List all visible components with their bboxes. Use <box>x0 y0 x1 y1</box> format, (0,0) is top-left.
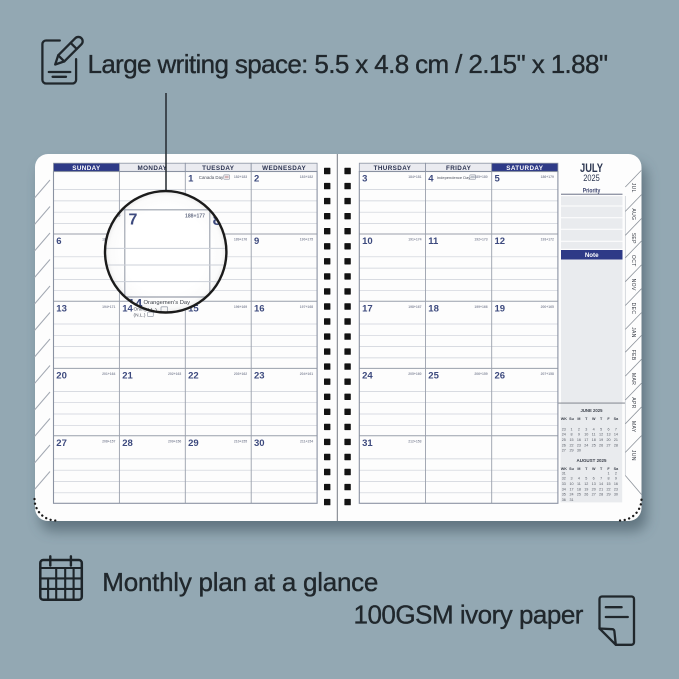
svg-text:1: 1 <box>188 174 194 185</box>
svg-text:Note: Note <box>585 252 599 259</box>
svg-text:4: 4 <box>428 174 434 185</box>
svg-text:APR: APR <box>630 397 636 408</box>
svg-text:10: 10 <box>362 236 373 247</box>
svg-text:209+156: 209+156 <box>168 439 181 443</box>
svg-text:31: 31 <box>362 438 373 449</box>
svg-text:31: 31 <box>569 498 573 502</box>
svg-text:FEB: FEB <box>630 350 636 361</box>
svg-text:(N.L.): (N.L.) <box>134 312 146 318</box>
svg-text:16: 16 <box>614 482 618 486</box>
svg-text:MONDAY: MONDAY <box>137 165 167 172</box>
svg-text:193+172: 193+172 <box>541 238 554 242</box>
svg-text:12: 12 <box>495 236 506 247</box>
svg-text:18: 18 <box>592 438 596 442</box>
svg-text:TUESDAY: TUESDAY <box>202 165 235 172</box>
svg-text:26: 26 <box>562 443 566 447</box>
svg-text:Large writing space: 5.5 x 4.8: Large writing space: 5.5 x 4.8 cm / 2.15… <box>88 49 608 79</box>
svg-text:2025: 2025 <box>583 173 600 183</box>
svg-text:7: 7 <box>615 427 617 431</box>
svg-text:15: 15 <box>606 482 610 486</box>
svg-text:190+175: 190+175 <box>300 238 313 242</box>
svg-text:204+161: 204+161 <box>300 372 313 376</box>
svg-text:28: 28 <box>599 493 603 497</box>
svg-text:17: 17 <box>584 438 588 442</box>
svg-text:205+160: 205+160 <box>408 372 421 376</box>
svg-text:SATURDAY: SATURDAY <box>506 165 544 172</box>
svg-text:22: 22 <box>569 443 573 447</box>
svg-text:25: 25 <box>428 371 439 382</box>
svg-text:197+168: 197+168 <box>300 305 313 309</box>
svg-text:19: 19 <box>584 487 588 491</box>
svg-text:5: 5 <box>600 427 602 431</box>
svg-text:21: 21 <box>122 371 133 382</box>
svg-text:30: 30 <box>614 493 618 497</box>
svg-text:8: 8 <box>607 477 609 481</box>
svg-text:OCT: OCT <box>630 255 636 267</box>
svg-text:5: 5 <box>585 477 587 481</box>
svg-text:2: 2 <box>578 427 580 431</box>
svg-text:27: 27 <box>592 493 596 497</box>
svg-text:14: 14 <box>614 433 618 437</box>
svg-text:WK: WK <box>561 417 567 421</box>
svg-text:202+163: 202+163 <box>168 372 181 376</box>
svg-text:17: 17 <box>569 487 573 491</box>
svg-text:1: 1 <box>607 471 609 475</box>
svg-text:WK: WK <box>561 467 567 471</box>
svg-text:2: 2 <box>254 174 259 185</box>
svg-text:198+167: 198+167 <box>408 305 421 309</box>
svg-text:JAN: JAN <box>630 327 636 338</box>
svg-text:JUL: JUL <box>630 183 636 193</box>
svg-text:26: 26 <box>495 371 506 382</box>
svg-text:10: 10 <box>584 433 588 437</box>
svg-text:AUG: AUG <box>630 208 636 220</box>
svg-text:Orangemen's Day: Orangemen's Day <box>144 300 191 306</box>
svg-text:35: 35 <box>562 493 566 497</box>
svg-text:201+164: 201+164 <box>102 372 115 376</box>
svg-text:13: 13 <box>606 433 610 437</box>
svg-text:23: 23 <box>577 443 581 447</box>
svg-text:M: M <box>577 467 580 471</box>
svg-text:16: 16 <box>577 438 581 442</box>
svg-text:212+153: 212+153 <box>408 439 421 443</box>
svg-text:182+183: 182+183 <box>234 175 247 179</box>
svg-text:7: 7 <box>600 477 602 481</box>
svg-text:14: 14 <box>122 303 133 314</box>
svg-text:NOV: NOV <box>630 279 636 291</box>
svg-text:6: 6 <box>56 236 61 247</box>
svg-text:15: 15 <box>569 438 573 442</box>
svg-text:22: 22 <box>188 371 199 382</box>
svg-text:3: 3 <box>362 174 367 185</box>
svg-text:9: 9 <box>578 433 580 437</box>
svg-text:16: 16 <box>254 303 265 314</box>
svg-text:10: 10 <box>569 482 573 486</box>
svg-text:DEC: DEC <box>630 303 636 315</box>
svg-text:13: 13 <box>56 303 67 314</box>
svg-text:3: 3 <box>585 427 587 431</box>
svg-text:6: 6 <box>593 477 595 481</box>
svg-text:21: 21 <box>614 438 618 442</box>
svg-text:29: 29 <box>606 493 610 497</box>
svg-text:199+166: 199+166 <box>474 305 487 309</box>
svg-text:26: 26 <box>584 493 588 497</box>
svg-text:4: 4 <box>593 427 595 431</box>
svg-text:34: 34 <box>562 487 566 491</box>
svg-text:189+176: 189+176 <box>234 238 247 242</box>
svg-text:9: 9 <box>254 236 259 247</box>
svg-text:6: 6 <box>607 427 609 431</box>
svg-text:32: 32 <box>562 477 566 481</box>
svg-text:JUNE 2025: JUNE 2025 <box>581 408 603 414</box>
svg-text:25: 25 <box>562 438 566 442</box>
svg-text:208+157: 208+157 <box>102 439 115 443</box>
svg-text:11: 11 <box>592 433 596 437</box>
svg-text:24: 24 <box>362 371 373 382</box>
svg-text:23: 23 <box>562 427 566 431</box>
svg-text:26: 26 <box>599 443 603 447</box>
svg-text:17: 17 <box>362 303 373 314</box>
svg-text:24: 24 <box>584 443 588 447</box>
svg-text:186+179: 186+179 <box>541 175 554 179</box>
svg-text:19: 19 <box>495 303 506 314</box>
svg-text:28: 28 <box>614 443 618 447</box>
svg-text:183+182: 183+182 <box>300 175 313 179</box>
svg-text:11: 11 <box>428 236 439 247</box>
svg-text:JUN: JUN <box>630 450 636 461</box>
svg-text:206+159: 206+159 <box>474 372 487 376</box>
svg-text:Su: Su <box>569 467 574 471</box>
svg-text:27: 27 <box>56 438 67 449</box>
svg-text:27: 27 <box>606 443 610 447</box>
svg-text:7: 7 <box>129 212 138 229</box>
svg-text:W: W <box>592 417 596 421</box>
svg-text:203+162: 203+162 <box>234 372 247 376</box>
svg-text:M: M <box>577 417 580 421</box>
svg-text:21: 21 <box>599 487 603 491</box>
svg-text:18: 18 <box>577 487 581 491</box>
svg-text:11: 11 <box>577 482 581 486</box>
svg-text:13: 13 <box>592 482 596 486</box>
svg-text:29: 29 <box>569 449 573 453</box>
svg-text:28: 28 <box>122 438 133 449</box>
svg-text:24: 24 <box>569 493 573 497</box>
svg-text:20: 20 <box>606 438 610 442</box>
svg-text:5: 5 <box>495 174 501 185</box>
svg-text:211+154: 211+154 <box>300 439 313 443</box>
svg-text:Monthly plan at a glance: Monthly plan at a glance <box>102 567 378 597</box>
svg-text:27: 27 <box>562 449 566 453</box>
svg-text:196+169: 196+169 <box>234 305 247 309</box>
svg-text:191+174: 191+174 <box>408 238 421 242</box>
svg-text:Priority: Priority <box>583 188 601 195</box>
svg-text:Canada Day: Canada Day <box>199 175 224 180</box>
svg-text:2: 2 <box>615 471 617 475</box>
svg-text:25: 25 <box>577 493 581 497</box>
svg-text:19: 19 <box>599 438 603 442</box>
svg-text:188+177: 188+177 <box>185 213 205 219</box>
svg-text:210+155: 210+155 <box>234 439 247 443</box>
svg-text:20: 20 <box>592 487 596 491</box>
svg-text:33: 33 <box>562 482 566 486</box>
svg-text:4: 4 <box>578 477 580 481</box>
svg-text:31: 31 <box>562 471 566 475</box>
svg-text:12: 12 <box>599 433 603 437</box>
svg-text:12: 12 <box>584 482 588 486</box>
svg-text:3: 3 <box>570 477 572 481</box>
svg-text:192+173: 192+173 <box>474 238 487 242</box>
svg-text:30: 30 <box>254 438 265 449</box>
svg-text:FRIDAY: FRIDAY <box>446 165 472 172</box>
svg-text:Independence Day: Independence Day <box>437 175 471 180</box>
svg-text:14: 14 <box>599 482 603 486</box>
svg-text:Su: Su <box>569 417 574 421</box>
svg-text:207+158: 207+158 <box>541 372 554 376</box>
svg-text:SUNDAY: SUNDAY <box>72 165 101 172</box>
svg-text:MAY: MAY <box>630 421 636 433</box>
svg-text:25: 25 <box>592 443 596 447</box>
svg-text:MAR: MAR <box>630 373 636 385</box>
svg-text:1: 1 <box>570 427 572 431</box>
svg-text:W: W <box>592 467 596 471</box>
svg-text:18: 18 <box>428 303 439 314</box>
svg-text:194+171: 194+171 <box>102 305 115 309</box>
svg-text:THURSDAY: THURSDAY <box>374 165 412 172</box>
svg-text:24: 24 <box>562 433 566 437</box>
svg-text:9: 9 <box>615 477 617 481</box>
svg-text:23: 23 <box>254 371 265 382</box>
svg-text:30: 30 <box>577 449 581 453</box>
svg-text:23: 23 <box>614 487 618 491</box>
svg-text:20: 20 <box>56 371 67 382</box>
svg-text:SEP: SEP <box>630 233 636 244</box>
svg-text:AUGUST 2025: AUGUST 2025 <box>577 458 607 464</box>
svg-text:22: 22 <box>606 487 610 491</box>
svg-text:100GSM ivory paper: 100GSM ivory paper <box>354 600 584 630</box>
svg-text:184+181: 184+181 <box>408 175 421 179</box>
svg-text:36: 36 <box>562 498 566 502</box>
svg-text:200+165: 200+165 <box>541 305 554 309</box>
svg-text:WEDNESDAY: WEDNESDAY <box>262 165 306 172</box>
svg-text:29: 29 <box>188 438 199 449</box>
svg-text:185+180: 185+180 <box>474 175 487 179</box>
svg-text:8: 8 <box>570 433 572 437</box>
